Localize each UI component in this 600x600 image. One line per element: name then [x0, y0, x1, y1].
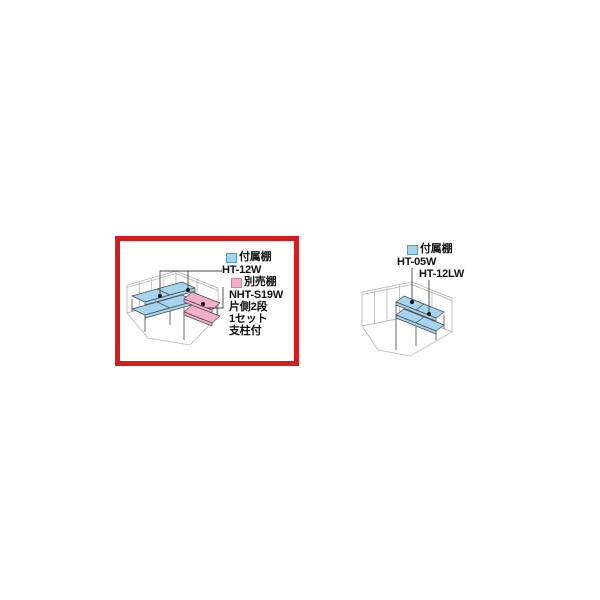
shed-interior-drawing-1 [120, 268, 233, 361]
shed-interior-drawing-2 [358, 266, 470, 366]
attached-shelf-swatch [407, 245, 418, 255]
legend-optional-spec-tiers: 片側2段 [229, 302, 267, 313]
legend-attached-model-b: HT-12LW [419, 269, 464, 280]
legend-attached-label: 付属棚 [420, 244, 452, 255]
legend-optional-label: 別売棚 [244, 277, 276, 288]
legend-attached-model-a: HT-05W [397, 257, 436, 268]
product-diagram-canvas: 付属棚 HT-12W 別売棚 NHT-S19W 片側2段 1セット 支柱付 [0, 0, 600, 600]
shelf-layout-option-2-panel: 付属棚 HT-05W HT-12LW [358, 238, 480, 368]
legend-optional-row: 別売棚 [231, 277, 276, 288]
legend-attached-label: 付属棚 [239, 252, 271, 263]
shelf-layout-option-1-panel: 付属棚 HT-12W 別売棚 NHT-S19W 片側2段 1セット 支柱付 [115, 236, 299, 366]
legend-optional-model: NHT-S19W [229, 290, 283, 301]
optional-shelf-swatch [231, 278, 242, 288]
legend-optional-spec-set: 1セット [229, 314, 267, 325]
attached-shelf-swatch [226, 253, 237, 263]
legend-attached-row: 付属棚 [407, 244, 452, 255]
legend-attached-model: HT-12W [222, 265, 261, 276]
legend-attached-row: 付属棚 [226, 252, 271, 263]
legend-optional-spec-posts: 支柱付 [229, 326, 261, 337]
